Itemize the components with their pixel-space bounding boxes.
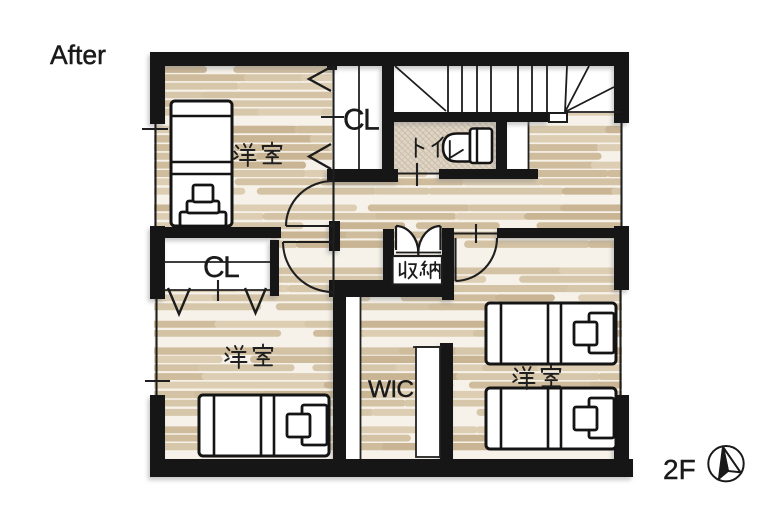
svg-text:WIC: WIC xyxy=(368,376,413,403)
svg-text:2F: 2F xyxy=(663,454,696,485)
svg-text:CL: CL xyxy=(343,104,379,137)
svg-text:CL: CL xyxy=(203,251,239,284)
svg-text:After: After xyxy=(50,40,106,70)
